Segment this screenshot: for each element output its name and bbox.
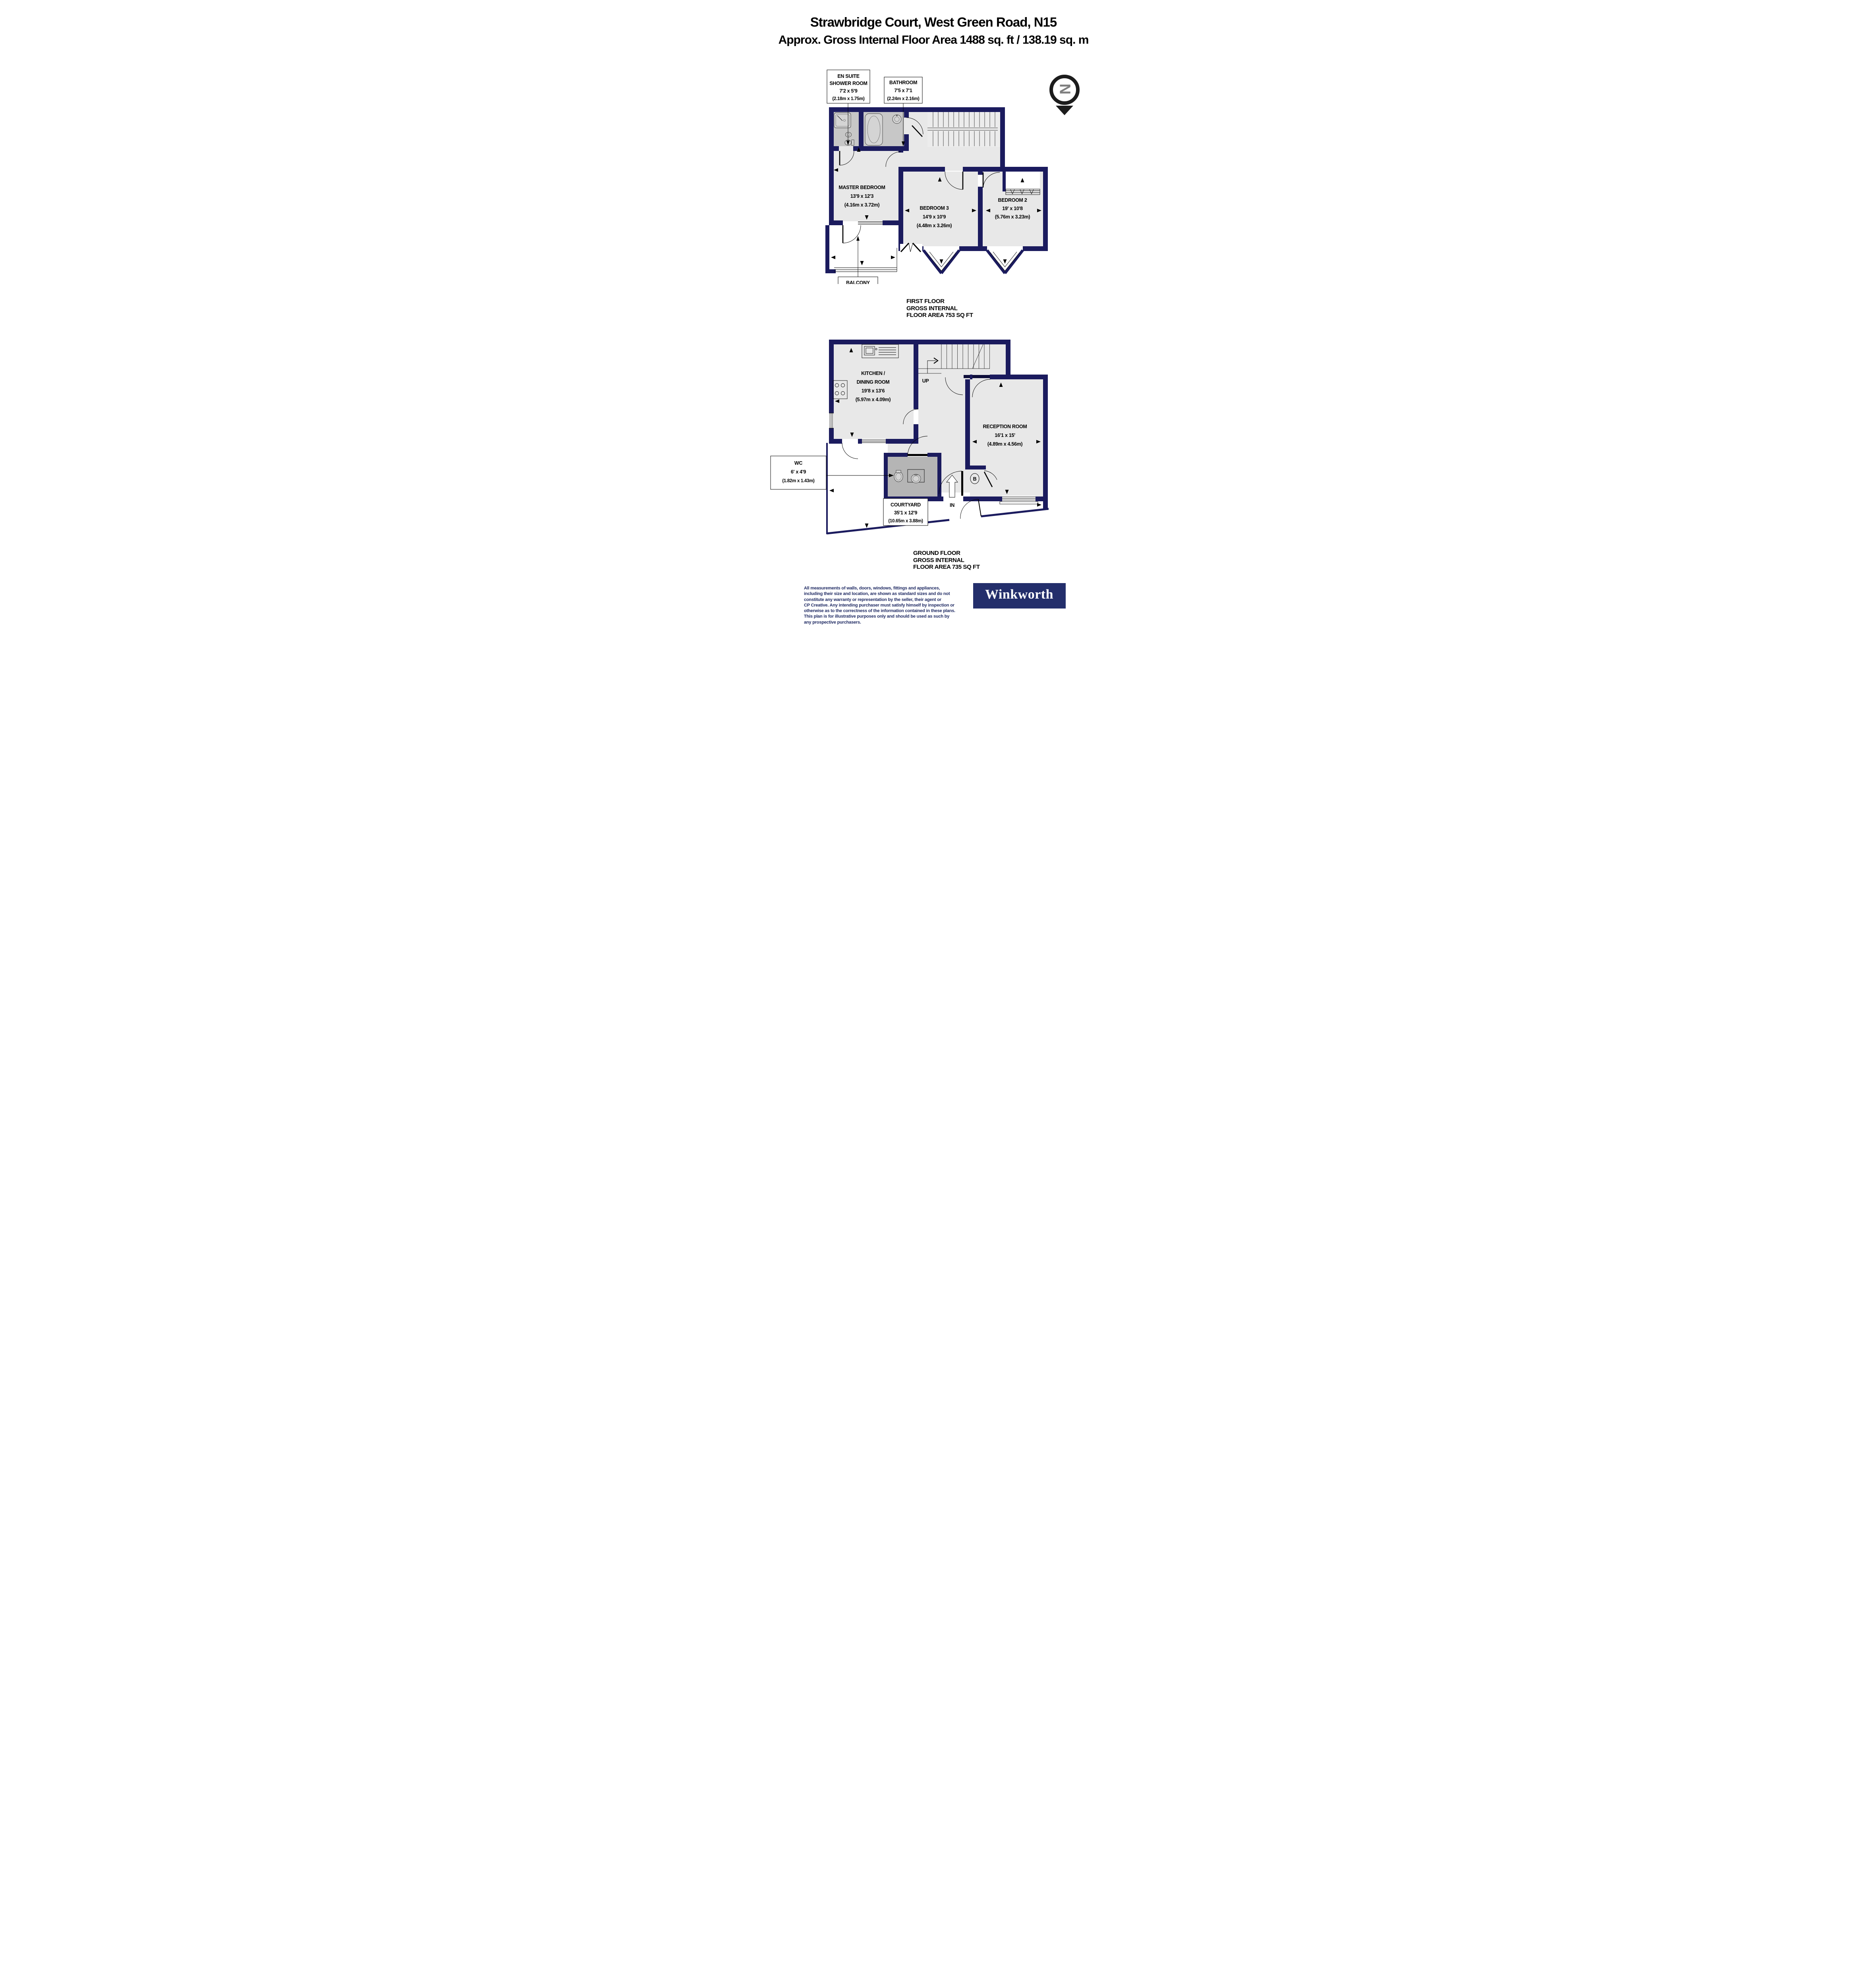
first-floor-caption-2: GROSS INTERNAL: [906, 305, 973, 312]
bay-window-bedroom2: [987, 250, 1023, 274]
disclaimer-line: CP Creative. Any intending purchaser mus…: [804, 603, 975, 608]
reception-metric: (4.89m x 4.56m): [987, 441, 1023, 447]
reception-window: [1000, 496, 1038, 504]
wc-metric: (1.82m x 1.43m): [782, 479, 815, 483]
ground-floor-caption-1: GROUND FLOOR: [913, 550, 980, 557]
bay-window-bedroom3: [924, 250, 959, 274]
bathroom-metric: (2.24m x 2.16m): [887, 97, 920, 101]
first-floor-caption-3: FLOOR AREA 753 SQ FT: [906, 312, 973, 319]
bedroom2-name: BEDROOM 2: [998, 197, 1027, 203]
first-floor-caption-1: FIRST FLOOR: [906, 298, 973, 305]
ground-floor-caption-2: GROSS INTERNAL: [913, 557, 980, 564]
ensuite-metric: (2.18m x 1.75m): [832, 97, 865, 101]
ensuite-imperial: 7'2 x 5'9: [840, 88, 858, 94]
bedroom3-imperial: 14'9 x 10'9: [923, 214, 946, 220]
first-floor-plan: EN SUITE SHOWER ROOM 7'2 x 5'9 (2.18m x …: [818, 68, 1053, 284]
courtyard-name: COURTYARD: [891, 502, 921, 508]
north-compass-pointer-icon: [1056, 106, 1073, 115]
reception-imperial: 16'1 x 15': [995, 433, 1015, 438]
courtyard-imperial: 35'1 x 12'9: [894, 510, 918, 516]
ensuite-name-2: SHOWER ROOM: [829, 81, 867, 86]
kitchen-side-window: [829, 413, 834, 428]
disclaimer-line: otherwise as to the correctness of the i…: [804, 608, 975, 614]
up-label: UP: [922, 378, 929, 384]
disclaimer-text: All measurements of walls, doors, window…: [804, 585, 975, 625]
bedroom2-imperial: 19' x 10'8: [1002, 206, 1023, 211]
wc-name: WC: [794, 460, 802, 466]
reception-name: RECEPTION ROOM: [983, 424, 1027, 429]
bathroom-imperial: 7'5 x 7'1: [895, 88, 912, 93]
winkworth-logo-text: Winkworth: [985, 587, 1066, 602]
first-floor-caption: FIRST FLOOR GROSS INTERNAL FLOOR AREA 75…: [906, 298, 973, 319]
kitchen-imperial: 19'8 x 13'6: [862, 388, 885, 394]
winkworth-logo: Winkworth: [973, 583, 1066, 609]
disclaimer-line: any prospective purchasers.: [804, 620, 975, 625]
ground-floor-caption: GROUND FLOOR GROSS INTERNAL FLOOR AREA 7…: [913, 550, 980, 571]
ground-floor-plan: WC 6' x 4'9 (1.82m x 1.43m) COURTYARD 35…: [767, 334, 1057, 537]
master-bedroom-metric: (4.16m x 3.72m): [844, 202, 880, 208]
ground-floor-caption-3: FLOOR AREA 735 SQ FT: [913, 564, 980, 571]
ensuite-name-1: EN SUITE: [837, 73, 859, 79]
north-letter: N: [1056, 84, 1073, 95]
kitchen-name-2: DINING ROOM: [857, 379, 890, 385]
disclaimer-line: All measurements of walls, doors, window…: [804, 585, 975, 591]
page-header: Strawbridge Court, West Green Road, N15 …: [727, 14, 1140, 48]
balcony-name: BALCONY: [846, 280, 870, 284]
wc-leader: [826, 474, 894, 477]
wc-imperial: 6' x 4'9: [791, 469, 806, 475]
kitchen-name-1: KITCHEN /: [861, 371, 885, 376]
property-title: Strawbridge Court, West Green Road, N15: [727, 14, 1140, 30]
disclaimer-line: This plan is for illustrative purposes o…: [804, 614, 975, 619]
bathroom-name: BATHROOM: [889, 80, 917, 85]
courtyard-metric: (10.65m x 3.88m): [888, 519, 923, 524]
boiler-label: B: [973, 476, 977, 482]
disclaimer-line: including their size and location, are s…: [804, 591, 975, 597]
courtyard-boundary: [827, 499, 1049, 533]
in-label: IN: [950, 502, 954, 508]
floorplan-page: Strawbridge Court, West Green Road, N15 …: [727, 0, 1149, 633]
disclaimer-line: constitute any warranty or representatio…: [804, 597, 975, 603]
floor-area-subtitle: Approx. Gross Internal Floor Area 1488 s…: [727, 33, 1140, 48]
wall-break-symbol: [900, 243, 922, 253]
master-bedroom-name: MASTER BEDROOM: [839, 185, 885, 190]
master-bedroom-imperial: 13'9 x 12'3: [850, 193, 874, 199]
kitchen-metric: (5.97m x 4.09m): [856, 397, 891, 402]
north-compass-icon: N: [1049, 75, 1080, 105]
bedroom3-name: BEDROOM 3: [920, 205, 949, 211]
kitchen-rear-window: [862, 439, 886, 444]
bedroom3-metric: (4.48m x 3.26m): [917, 223, 952, 228]
bedroom2-metric: (5.76m x 3.23m): [995, 214, 1030, 220]
